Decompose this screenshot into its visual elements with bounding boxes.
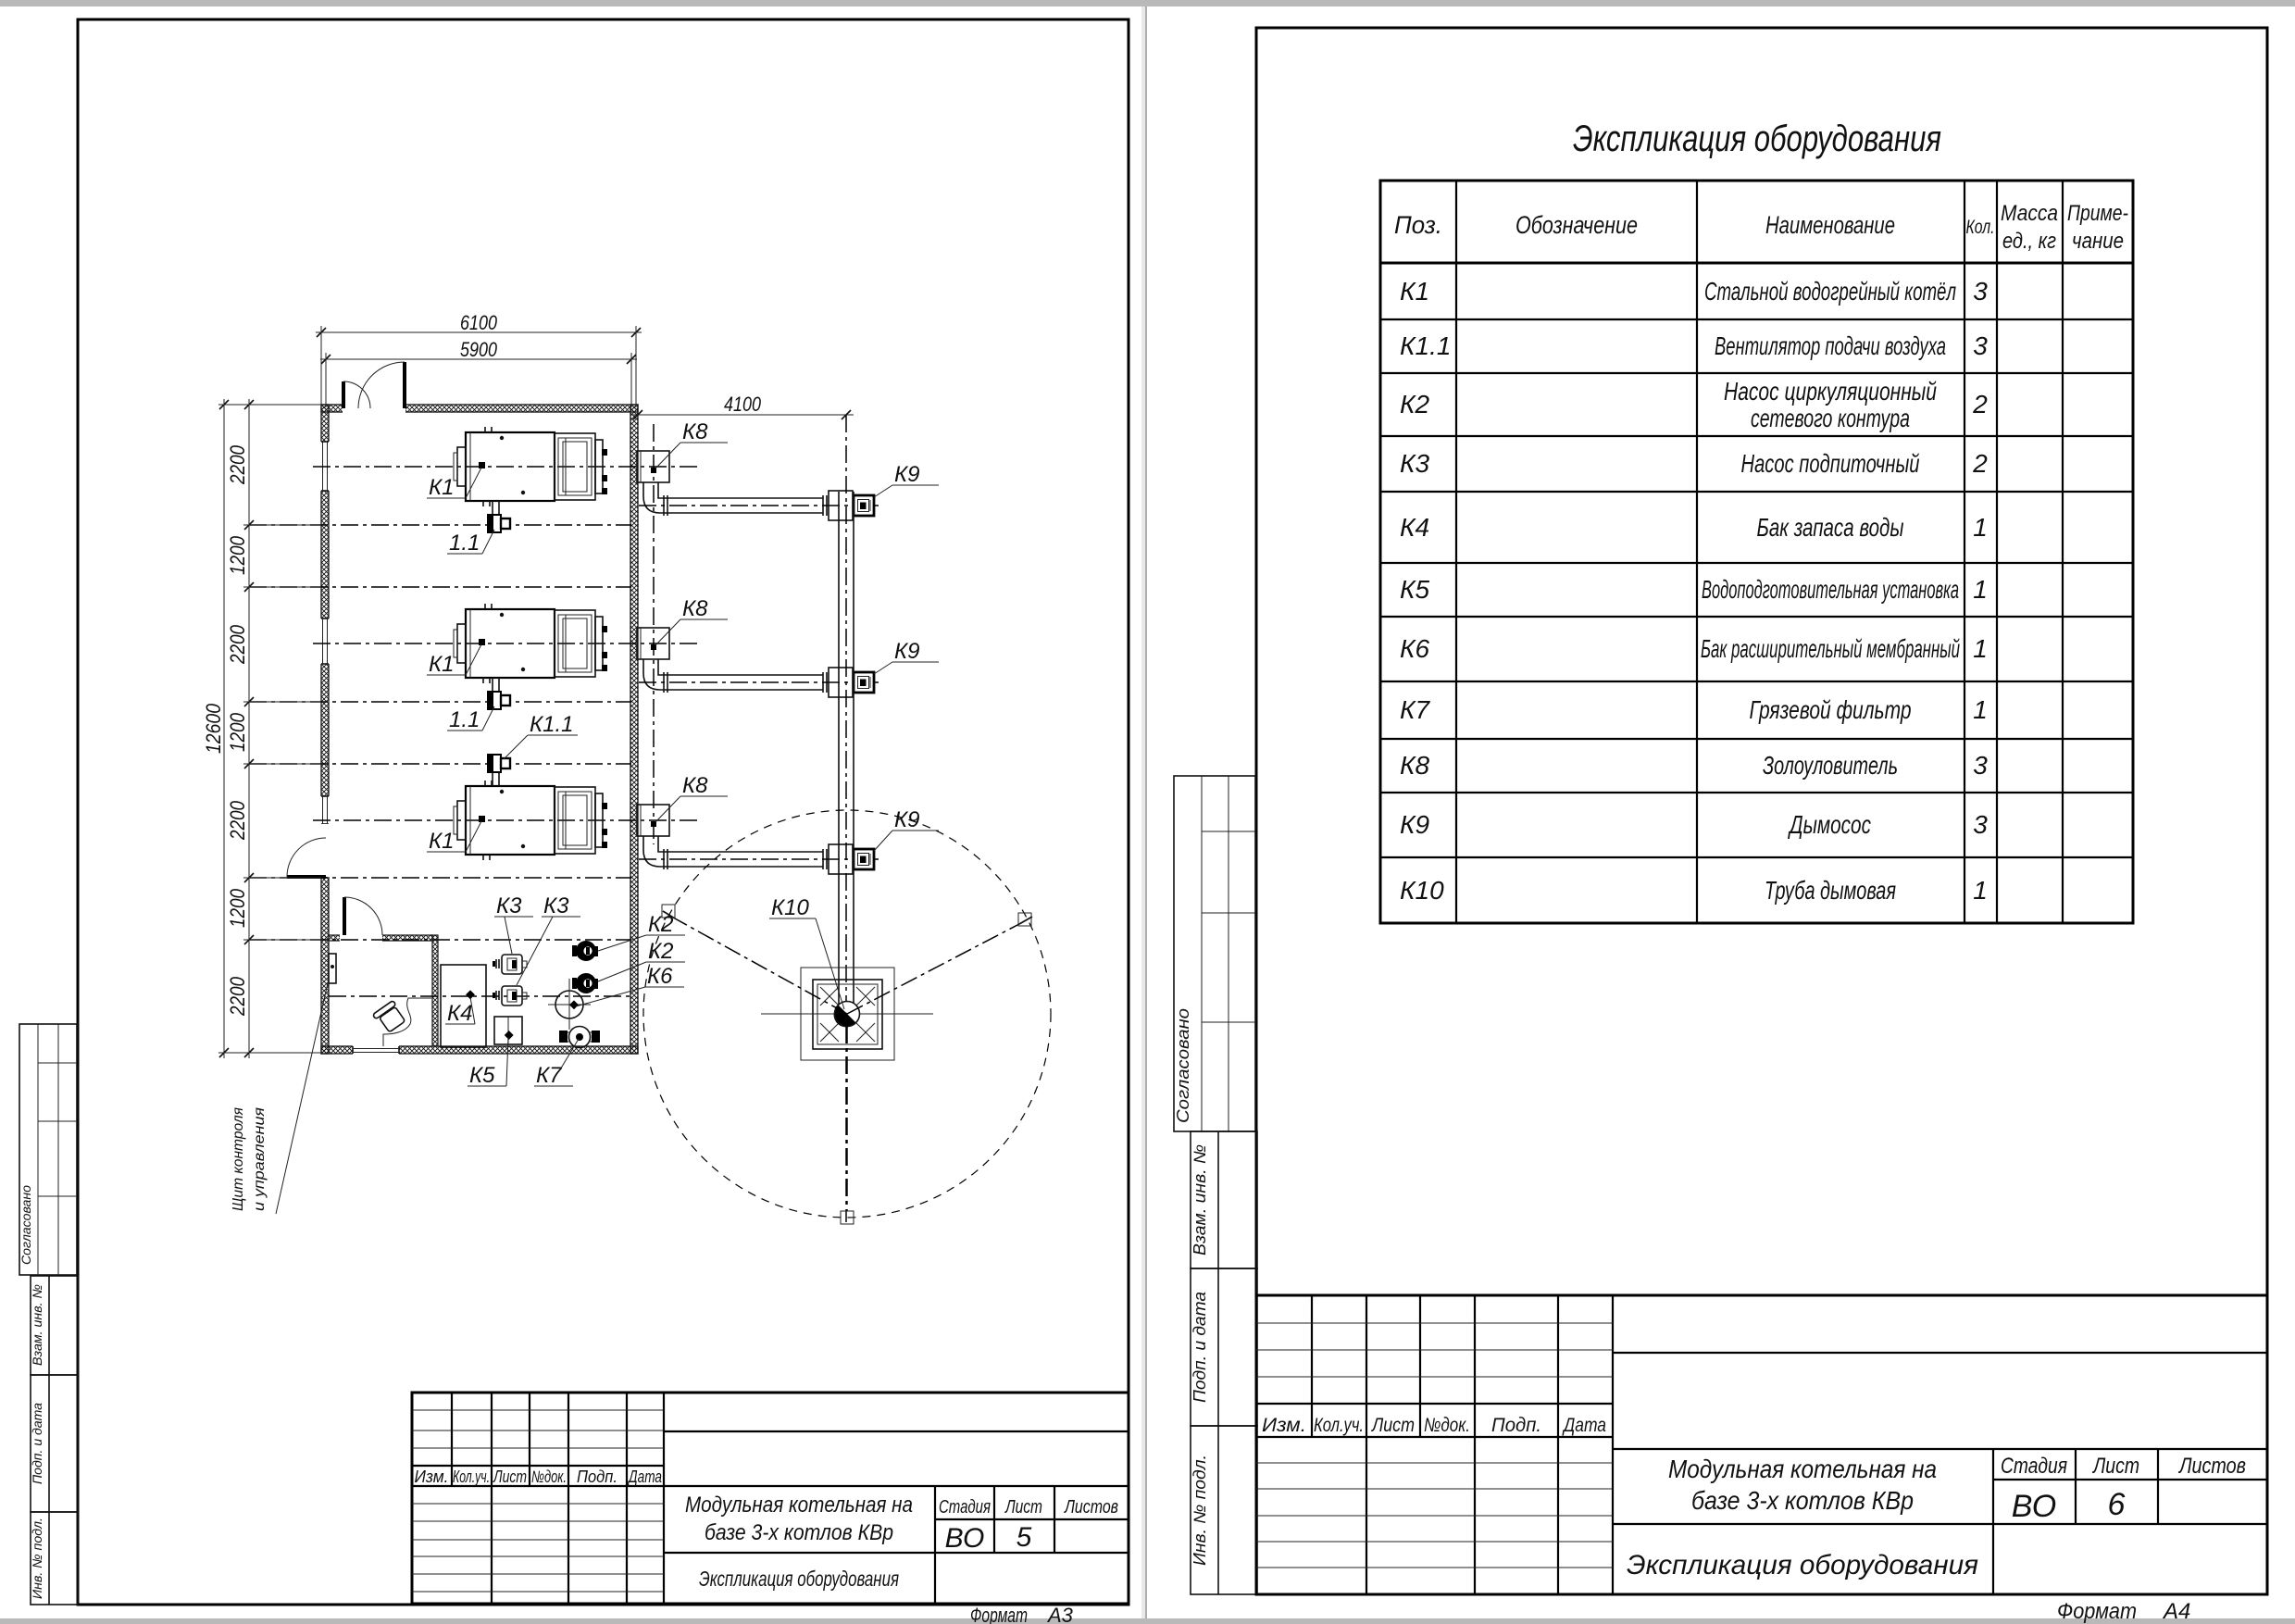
svg-text:К2: К2 — [648, 939, 674, 964]
svg-text:К1: К1 — [429, 829, 455, 854]
svg-text:6100: 6100 — [460, 311, 498, 334]
svg-text:Дата: Дата — [627, 1468, 662, 1486]
svg-text:К3: К3 — [1400, 449, 1430, 478]
svg-text:Подп.: Подп. — [1491, 1415, 1541, 1436]
svg-text:Инв. № подл.: Инв. № подл. — [1191, 1455, 1209, 1566]
svg-text:№док.: №док. — [1424, 1415, 1470, 1436]
svg-text:Стадия: Стадия — [939, 1497, 991, 1518]
svg-text:Грязевой фильтр: Грязевой фильтр — [1750, 695, 1912, 724]
svg-text:Лист: Лист — [1004, 1497, 1042, 1518]
svg-text:Экспликация оборудования: Экспликация оборудования — [1573, 119, 1941, 159]
svg-text:К1.1: К1.1 — [1400, 331, 1451, 360]
svg-text:1: 1 — [1973, 695, 1988, 724]
svg-text:Стадия: Стадия — [2001, 1454, 2067, 1479]
svg-text:К8: К8 — [682, 596, 708, 621]
svg-text:1200: 1200 — [226, 888, 249, 928]
svg-text:1: 1 — [1973, 876, 1988, 905]
svg-text:1200: 1200 — [226, 712, 249, 752]
svg-text:Труба дымовая: Труба дымовая — [1765, 876, 1896, 905]
svg-text:К1.1: К1.1 — [530, 712, 574, 737]
svg-text:ед., кг: ед., кг — [2002, 229, 2056, 254]
svg-text:К6: К6 — [1400, 634, 1430, 663]
svg-text:К10: К10 — [1400, 876, 1444, 905]
svg-text:К3: К3 — [496, 893, 522, 918]
svg-text:ВО: ВО — [945, 1523, 985, 1554]
svg-text:Бак запаса воды: Бак запаса воды — [1757, 513, 1904, 542]
svg-text:5: 5 — [1017, 1522, 1032, 1553]
svg-text:Взам. инв. №: Взам. инв. № — [1191, 1144, 1209, 1255]
svg-text:Листов: Листов — [1063, 1497, 1118, 1518]
svg-text:3: 3 — [1973, 331, 1988, 360]
svg-text:сетевого контура: сетевого контура — [1751, 404, 1910, 432]
svg-text:Насос подпиточный: Насос подпиточный — [1741, 449, 1920, 478]
svg-text:Масса: Масса — [2001, 201, 2058, 226]
svg-text:3: 3 — [1973, 810, 1988, 839]
svg-text:К9: К9 — [894, 639, 920, 664]
svg-text:Лист: Лист — [2091, 1454, 2139, 1479]
svg-text:К1: К1 — [429, 475, 455, 500]
svg-text:Листов: Листов — [2177, 1454, 2246, 1479]
svg-text:К1: К1 — [1400, 277, 1429, 306]
svg-text:Щит контроля: Щит контроля — [231, 1107, 246, 1211]
svg-text:Согласовано: Согласовано — [19, 1185, 33, 1265]
svg-text:Изм.: Изм. — [415, 1468, 449, 1486]
svg-text:№док.: №док. — [531, 1468, 567, 1486]
svg-text:Водоподготовительная установка: Водоподготовительная установка — [1702, 575, 1959, 604]
svg-text:Экспликация оборудования: Экспликация оборудования — [699, 1567, 899, 1591]
svg-text:К9: К9 — [1400, 810, 1429, 839]
svg-text:2200: 2200 — [226, 624, 249, 665]
svg-text:ВО: ВО — [2012, 1489, 2056, 1524]
svg-text:2: 2 — [1972, 390, 1988, 418]
svg-text:К7: К7 — [1400, 695, 1431, 724]
svg-text:К8: К8 — [1400, 751, 1430, 780]
svg-text:Кол.уч.: Кол.уч. — [453, 1468, 490, 1486]
svg-text:4100: 4100 — [724, 393, 762, 416]
svg-text:3: 3 — [1973, 751, 1988, 780]
svg-text:К5: К5 — [1400, 575, 1430, 604]
svg-text:Стальной водогрейный котёл: Стальной водогрейный котёл — [1704, 277, 1956, 306]
svg-text:2: 2 — [1972, 449, 1988, 478]
svg-text:К4: К4 — [447, 1001, 473, 1026]
svg-text:Подп. и дата: Подп. и дата — [1191, 1292, 1209, 1403]
svg-text:2200: 2200 — [226, 976, 249, 1017]
svg-text:Дата: Дата — [1562, 1415, 1606, 1436]
svg-text:3: 3 — [1973, 277, 1988, 306]
svg-text:К4: К4 — [1400, 513, 1429, 542]
svg-text:Приме-: Приме- — [2067, 201, 2128, 226]
svg-text:чание: чание — [2072, 229, 2124, 254]
svg-text:Поз.: Поз. — [1394, 211, 1442, 239]
svg-text:Согласовано: Согласовано — [1174, 1008, 1192, 1123]
svg-text:Подп. и дата: Подп. и дата — [30, 1403, 44, 1484]
svg-text:А4: А4 — [2162, 1599, 2190, 1624]
svg-text:Формат: Формат — [970, 1604, 1028, 1624]
svg-text:К8: К8 — [682, 773, 708, 798]
svg-text:2200: 2200 — [226, 800, 249, 841]
svg-text:Экспликация оборудования: Экспликация оборудования — [1627, 1550, 1978, 1580]
svg-text:Лист: Лист — [1370, 1415, 1415, 1436]
svg-text:К2: К2 — [1400, 390, 1430, 418]
svg-text:К10: К10 — [771, 895, 809, 920]
svg-text:Насос циркуляционный: Насос циркуляционный — [1724, 377, 1937, 406]
svg-text:базе 3-х котлов КВр: базе 3-х котлов КВр — [705, 1520, 893, 1545]
svg-text:Инв. № подл.: Инв. № подл. — [30, 1518, 44, 1599]
svg-text:Изм.: Изм. — [1262, 1415, 1306, 1436]
svg-text:К2: К2 — [648, 912, 674, 937]
svg-text:Кол.: Кол. — [1966, 217, 1995, 238]
svg-text:К9: К9 — [894, 807, 920, 832]
svg-text:1.1: 1.1 — [449, 707, 480, 732]
svg-text:К5: К5 — [469, 1063, 495, 1088]
svg-text:2200: 2200 — [226, 444, 249, 485]
svg-text:К7: К7 — [536, 1063, 563, 1088]
svg-text:Формат: Формат — [2057, 1599, 2137, 1624]
svg-text:Вентилятор подачи воздуха: Вентилятор подачи воздуха — [1715, 331, 1946, 360]
svg-text:1: 1 — [1973, 575, 1988, 604]
svg-text:Обозначение: Обозначение — [1515, 211, 1638, 239]
svg-text:и управления: и управления — [252, 1106, 268, 1211]
svg-text:1.1: 1.1 — [449, 531, 480, 556]
svg-text:базе 3-х котлов КВр: базе 3-х котлов КВр — [1691, 1486, 1914, 1515]
svg-text:Наименование: Наименование — [1765, 211, 1895, 239]
svg-text:1: 1 — [1973, 634, 1988, 663]
svg-text:К9: К9 — [894, 462, 920, 487]
svg-text:Золоуловитель: Золоуловитель — [1763, 751, 1898, 780]
svg-text:12600: 12600 — [202, 703, 225, 754]
svg-text:5900: 5900 — [460, 338, 498, 361]
svg-text:К3: К3 — [543, 893, 569, 918]
svg-text:1200: 1200 — [226, 535, 249, 575]
svg-text:Кол.уч.: Кол.уч. — [1314, 1415, 1364, 1436]
svg-text:Бак расширительный мембранный: Бак расширительный мембранный — [1701, 634, 1960, 663]
svg-text:Дымосос: Дымосос — [1788, 810, 1871, 839]
svg-text:Взам. инв. №: Взам. инв. № — [30, 1284, 44, 1366]
svg-text:Модульная котельная на: Модульная котельная на — [685, 1493, 913, 1518]
svg-text:К6: К6 — [647, 964, 673, 989]
svg-text:А3: А3 — [1046, 1604, 1074, 1624]
svg-text:К1: К1 — [429, 652, 455, 677]
svg-text:1: 1 — [1973, 513, 1988, 542]
svg-text:К8: К8 — [682, 419, 708, 444]
svg-text:Модульная котельная на: Модульная котельная на — [1668, 1455, 1937, 1483]
svg-text:Лист: Лист — [493, 1468, 527, 1486]
svg-text:Подп.: Подп. — [577, 1468, 617, 1486]
svg-text:6: 6 — [2108, 1487, 2126, 1522]
